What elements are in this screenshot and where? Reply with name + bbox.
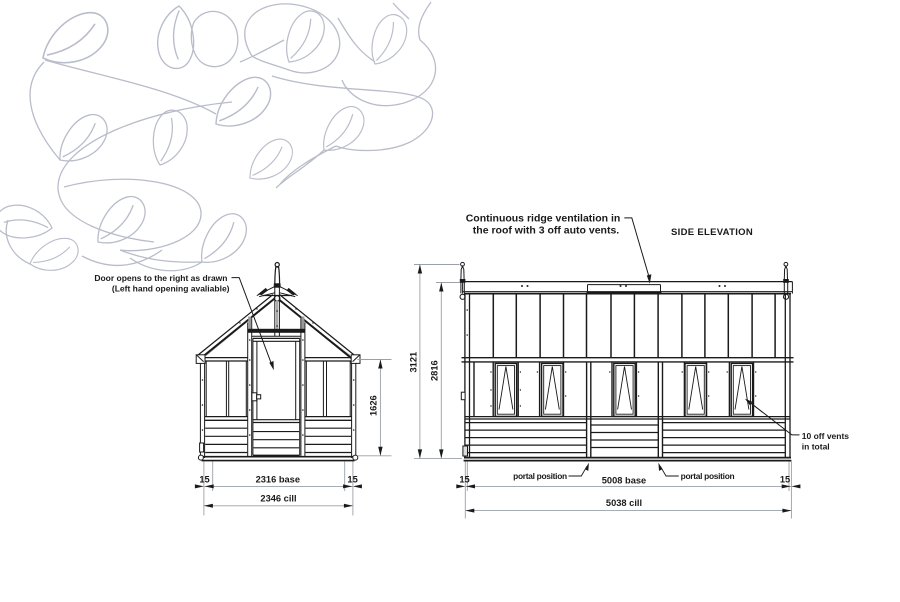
svg-text:in total: in total	[802, 441, 830, 451]
svg-text:15: 15	[459, 474, 469, 484]
svg-text:Door opens to the right as dra: Door opens to the right as drawn	[94, 273, 227, 283]
svg-text:5008 base: 5008 base	[602, 476, 646, 486]
svg-text:3121: 3121	[408, 352, 418, 373]
svg-text:5038 cill: 5038 cill	[606, 498, 642, 508]
svg-text:2346 cill: 2346 cill	[260, 494, 296, 504]
svg-text:portal position: portal position	[681, 471, 735, 481]
svg-text:(Left hand opening avaliable): (Left hand opening avaliable)	[112, 284, 230, 294]
svg-text:15: 15	[780, 474, 790, 484]
svg-text:2816: 2816	[430, 360, 440, 381]
svg-text:10 off vents: 10 off vents	[802, 431, 850, 441]
svg-text:Continuous ridge ventilation i: Continuous ridge ventilation in	[466, 212, 621, 224]
svg-text:15: 15	[347, 474, 357, 484]
svg-text:SIDE ELEVATION: SIDE ELEVATION	[671, 227, 753, 238]
svg-text:portal position: portal position	[513, 471, 567, 481]
svg-text:the roof with 3 off auto vents: the roof with 3 off auto vents.	[473, 224, 619, 236]
svg-text:1626: 1626	[369, 395, 379, 416]
svg-text:2316 base: 2316 base	[256, 474, 300, 484]
svg-text:15: 15	[199, 474, 209, 484]
